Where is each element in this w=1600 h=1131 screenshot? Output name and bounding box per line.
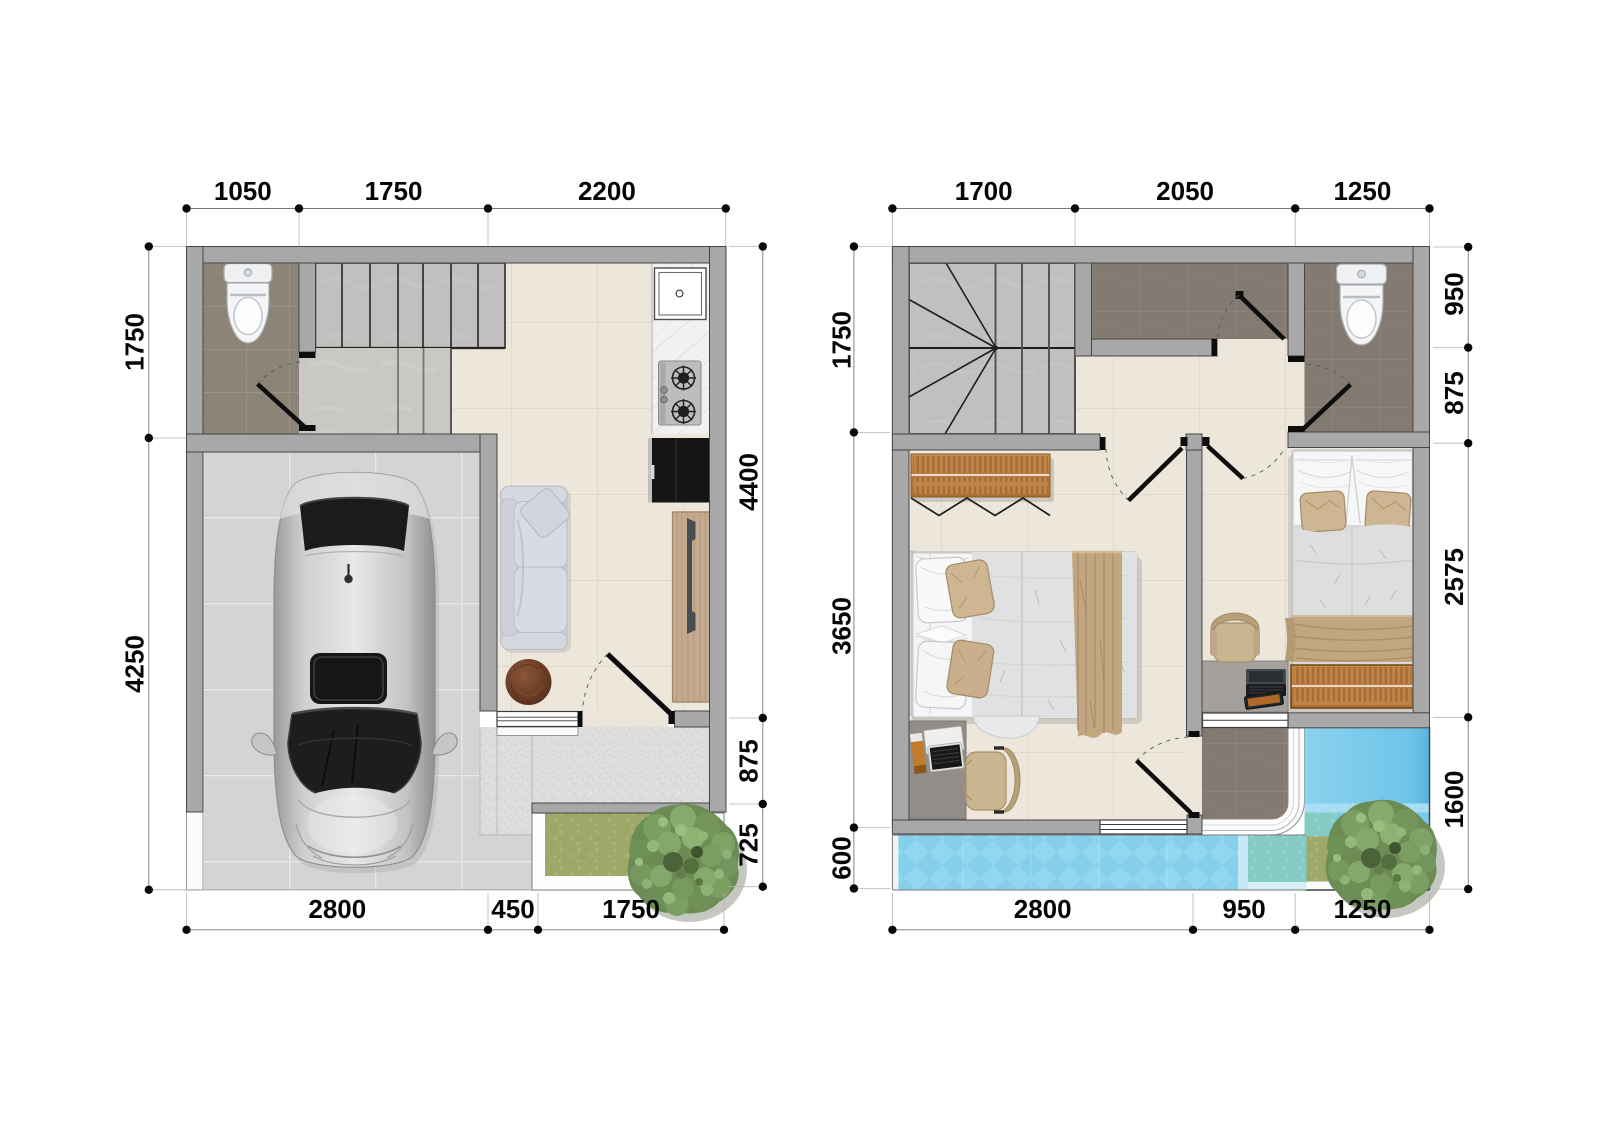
svg-text:600: 600 (827, 836, 857, 879)
svg-text:1600: 1600 (1439, 771, 1469, 829)
svg-text:1750: 1750 (365, 176, 423, 206)
svg-text:2575: 2575 (1439, 548, 1469, 606)
svg-text:3650: 3650 (827, 597, 857, 655)
svg-text:1750: 1750 (827, 311, 857, 369)
svg-text:1250: 1250 (1333, 176, 1391, 206)
svg-text:1050: 1050 (214, 176, 272, 206)
svg-text:4400: 4400 (734, 453, 764, 511)
svg-text:2800: 2800 (308, 894, 366, 924)
svg-text:4250: 4250 (120, 635, 150, 693)
svg-text:950: 950 (1222, 894, 1265, 924)
svg-text:1250: 1250 (1333, 894, 1391, 924)
svg-text:950: 950 (1439, 272, 1469, 315)
svg-text:1750: 1750 (602, 894, 660, 924)
svg-text:875: 875 (1439, 371, 1469, 414)
svg-text:1700: 1700 (955, 176, 1013, 206)
svg-text:2050: 2050 (1156, 176, 1214, 206)
svg-text:1750: 1750 (120, 313, 150, 371)
svg-text:2800: 2800 (1014, 894, 1072, 924)
svg-text:2200: 2200 (578, 176, 636, 206)
svg-text:725: 725 (734, 823, 764, 866)
svg-text:450: 450 (491, 894, 534, 924)
svg-text:875: 875 (734, 739, 764, 782)
